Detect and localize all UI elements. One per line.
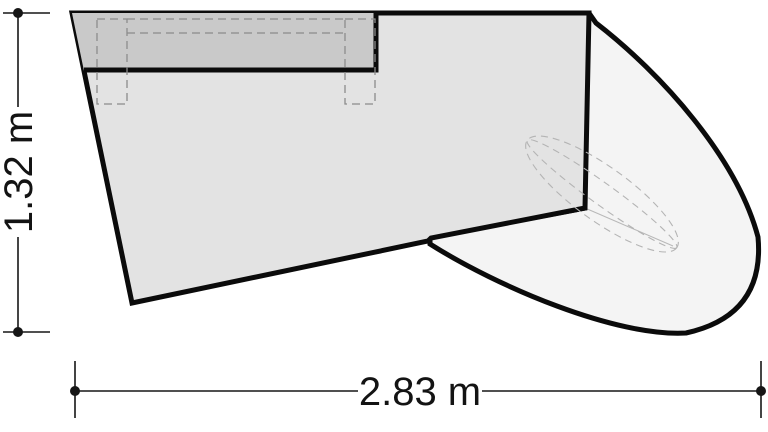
width-dim-dot-left: [70, 386, 80, 396]
height-dimension-label: 1.32 m: [0, 111, 41, 233]
width-dimension: 2.83 m: [70, 361, 766, 418]
height-dim-dot-bottom: [13, 327, 23, 337]
technical-drawing: 1.32 m 2.83 m: [0, 0, 768, 432]
width-dimension-label: 2.83 m: [359, 370, 481, 414]
height-dimension: 1.32 m: [0, 8, 50, 337]
keyboard-panel: [72, 13, 376, 71]
height-dim-dot-top: [13, 8, 23, 18]
width-dim-dot-right: [756, 386, 766, 396]
